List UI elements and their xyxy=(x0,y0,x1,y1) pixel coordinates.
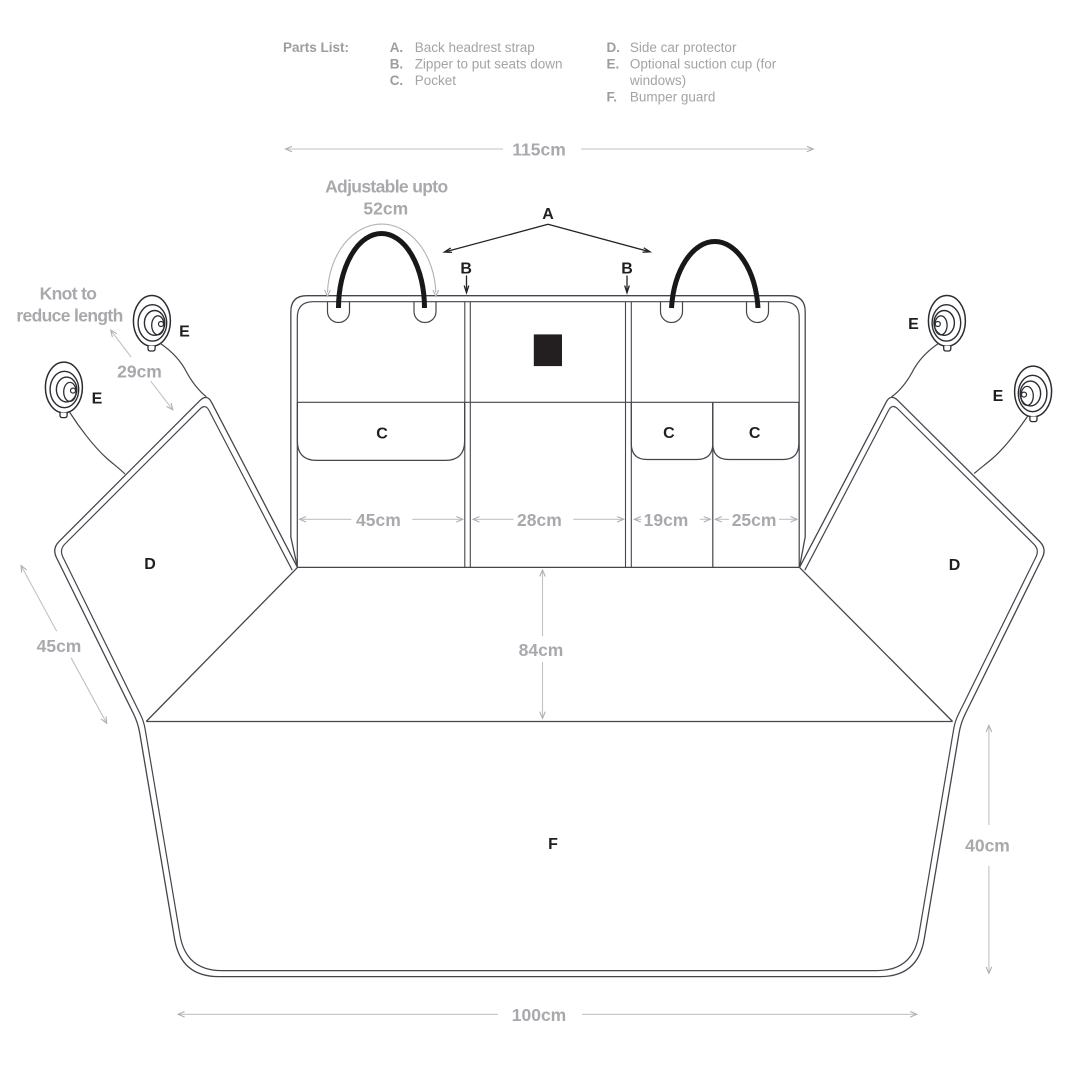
svg-text:E: E xyxy=(92,391,103,408)
svg-text:19cm: 19cm xyxy=(644,510,689,530)
svg-text:B: B xyxy=(460,261,472,278)
svg-text:28cm: 28cm xyxy=(517,510,562,530)
svg-text:84cm: 84cm xyxy=(519,640,564,660)
svg-text:E.: E. xyxy=(607,56,620,71)
svg-text:40cm: 40cm xyxy=(965,835,1010,855)
svg-text:C.: C. xyxy=(390,73,404,88)
svg-text:C: C xyxy=(749,425,761,442)
svg-text:Knot to: Knot to xyxy=(40,284,97,304)
svg-text:D: D xyxy=(144,556,156,573)
svg-text:B: B xyxy=(621,261,633,278)
svg-text:Optional suction cup (for: Optional suction cup (for xyxy=(630,56,777,71)
svg-text:29cm: 29cm xyxy=(117,361,162,381)
svg-text:52cm: 52cm xyxy=(363,198,408,218)
svg-text:Parts List:: Parts List: xyxy=(283,40,349,55)
svg-text:Back headrest strap: Back headrest strap xyxy=(415,40,535,55)
svg-text:45cm: 45cm xyxy=(37,636,82,656)
svg-text:D: D xyxy=(949,557,961,574)
svg-text:25cm: 25cm xyxy=(732,510,777,530)
svg-text:Side car protector: Side car protector xyxy=(630,40,737,55)
svg-text:E: E xyxy=(908,316,919,333)
svg-text:Zipper to put seats down: Zipper to put seats down xyxy=(415,56,563,71)
svg-text:reduce length: reduce length xyxy=(16,305,122,325)
svg-text:C: C xyxy=(663,425,675,442)
svg-text:F.: F. xyxy=(607,89,618,104)
svg-text:F: F xyxy=(548,836,558,853)
svg-text:45cm: 45cm xyxy=(356,510,401,530)
svg-text:115cm: 115cm xyxy=(512,139,566,159)
svg-text:C: C xyxy=(376,425,388,442)
svg-text:E: E xyxy=(993,388,1004,405)
svg-text:100cm: 100cm xyxy=(512,1005,567,1025)
svg-text:A.: A. xyxy=(390,40,404,55)
svg-text:Pocket: Pocket xyxy=(415,73,457,88)
svg-text:Bumper guard: Bumper guard xyxy=(630,89,716,104)
svg-text:E: E xyxy=(179,323,190,340)
svg-text:Adjustable upto: Adjustable upto xyxy=(325,176,447,196)
svg-text:D.: D. xyxy=(607,40,621,55)
svg-text:B.: B. xyxy=(390,56,404,71)
svg-text:A: A xyxy=(542,206,554,223)
svg-text:windows): windows) xyxy=(629,73,686,88)
